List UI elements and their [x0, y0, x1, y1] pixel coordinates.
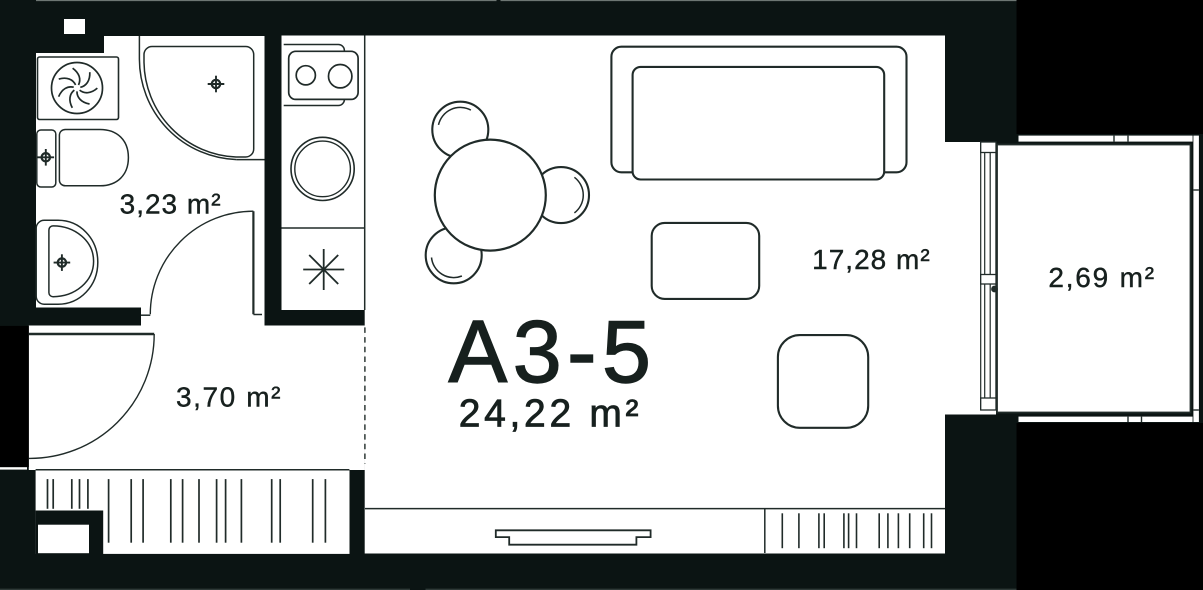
- svg-text:A3-5: A3-5: [449, 302, 657, 401]
- svg-text:24,22 m²: 24,22 m²: [459, 392, 643, 435]
- svg-text:17,28 m²: 17,28 m²: [812, 244, 931, 275]
- svg-text:2,69 m²: 2,69 m²: [1048, 262, 1156, 293]
- svg-text:3,70 m²: 3,70 m²: [176, 381, 282, 412]
- svg-text:3,23 m²: 3,23 m²: [120, 188, 222, 219]
